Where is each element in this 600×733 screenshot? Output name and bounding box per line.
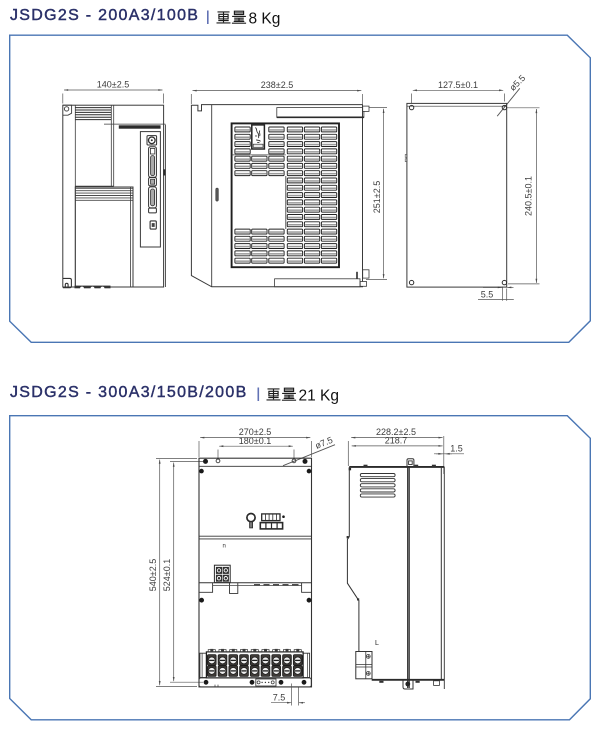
svg-text:180±0.1: 180±0.1 bbox=[239, 436, 271, 446]
svg-text:JSDG2S - 300A3/150B/200B: JSDG2S - 300A3/150B/200B bbox=[10, 384, 248, 401]
svg-text:238±2.5: 238±2.5 bbox=[261, 80, 293, 90]
svg-text:ø7.5: ø7.5 bbox=[314, 435, 334, 451]
svg-text:524±0.1: 524±0.1 bbox=[162, 559, 172, 591]
svg-text:240.5±0.1: 240.5±0.1 bbox=[524, 176, 534, 216]
svg-text:JSDG2S - 200A3/100B: JSDG2S - 200A3/100B bbox=[10, 7, 199, 24]
svg-text:140±2.5: 140±2.5 bbox=[97, 80, 129, 90]
svg-text:21 Kg: 21 Kg bbox=[299, 387, 340, 404]
svg-text:ø5.5: ø5.5 bbox=[507, 73, 527, 93]
svg-text:n: n bbox=[223, 544, 226, 550]
svg-text:7.5: 7.5 bbox=[273, 692, 286, 702]
svg-text:5.5: 5.5 bbox=[481, 289, 494, 299]
svg-text:540±2.5: 540±2.5 bbox=[148, 559, 158, 591]
svg-text:218.7: 218.7 bbox=[385, 436, 408, 446]
svg-text:1.5: 1.5 bbox=[450, 444, 463, 454]
svg-text:251±2.5: 251±2.5 bbox=[372, 181, 382, 213]
svg-text:L: L bbox=[375, 640, 379, 647]
svg-text:8 Kg: 8 Kg bbox=[249, 10, 281, 27]
svg-text:127.5±0.1: 127.5±0.1 bbox=[438, 80, 478, 90]
